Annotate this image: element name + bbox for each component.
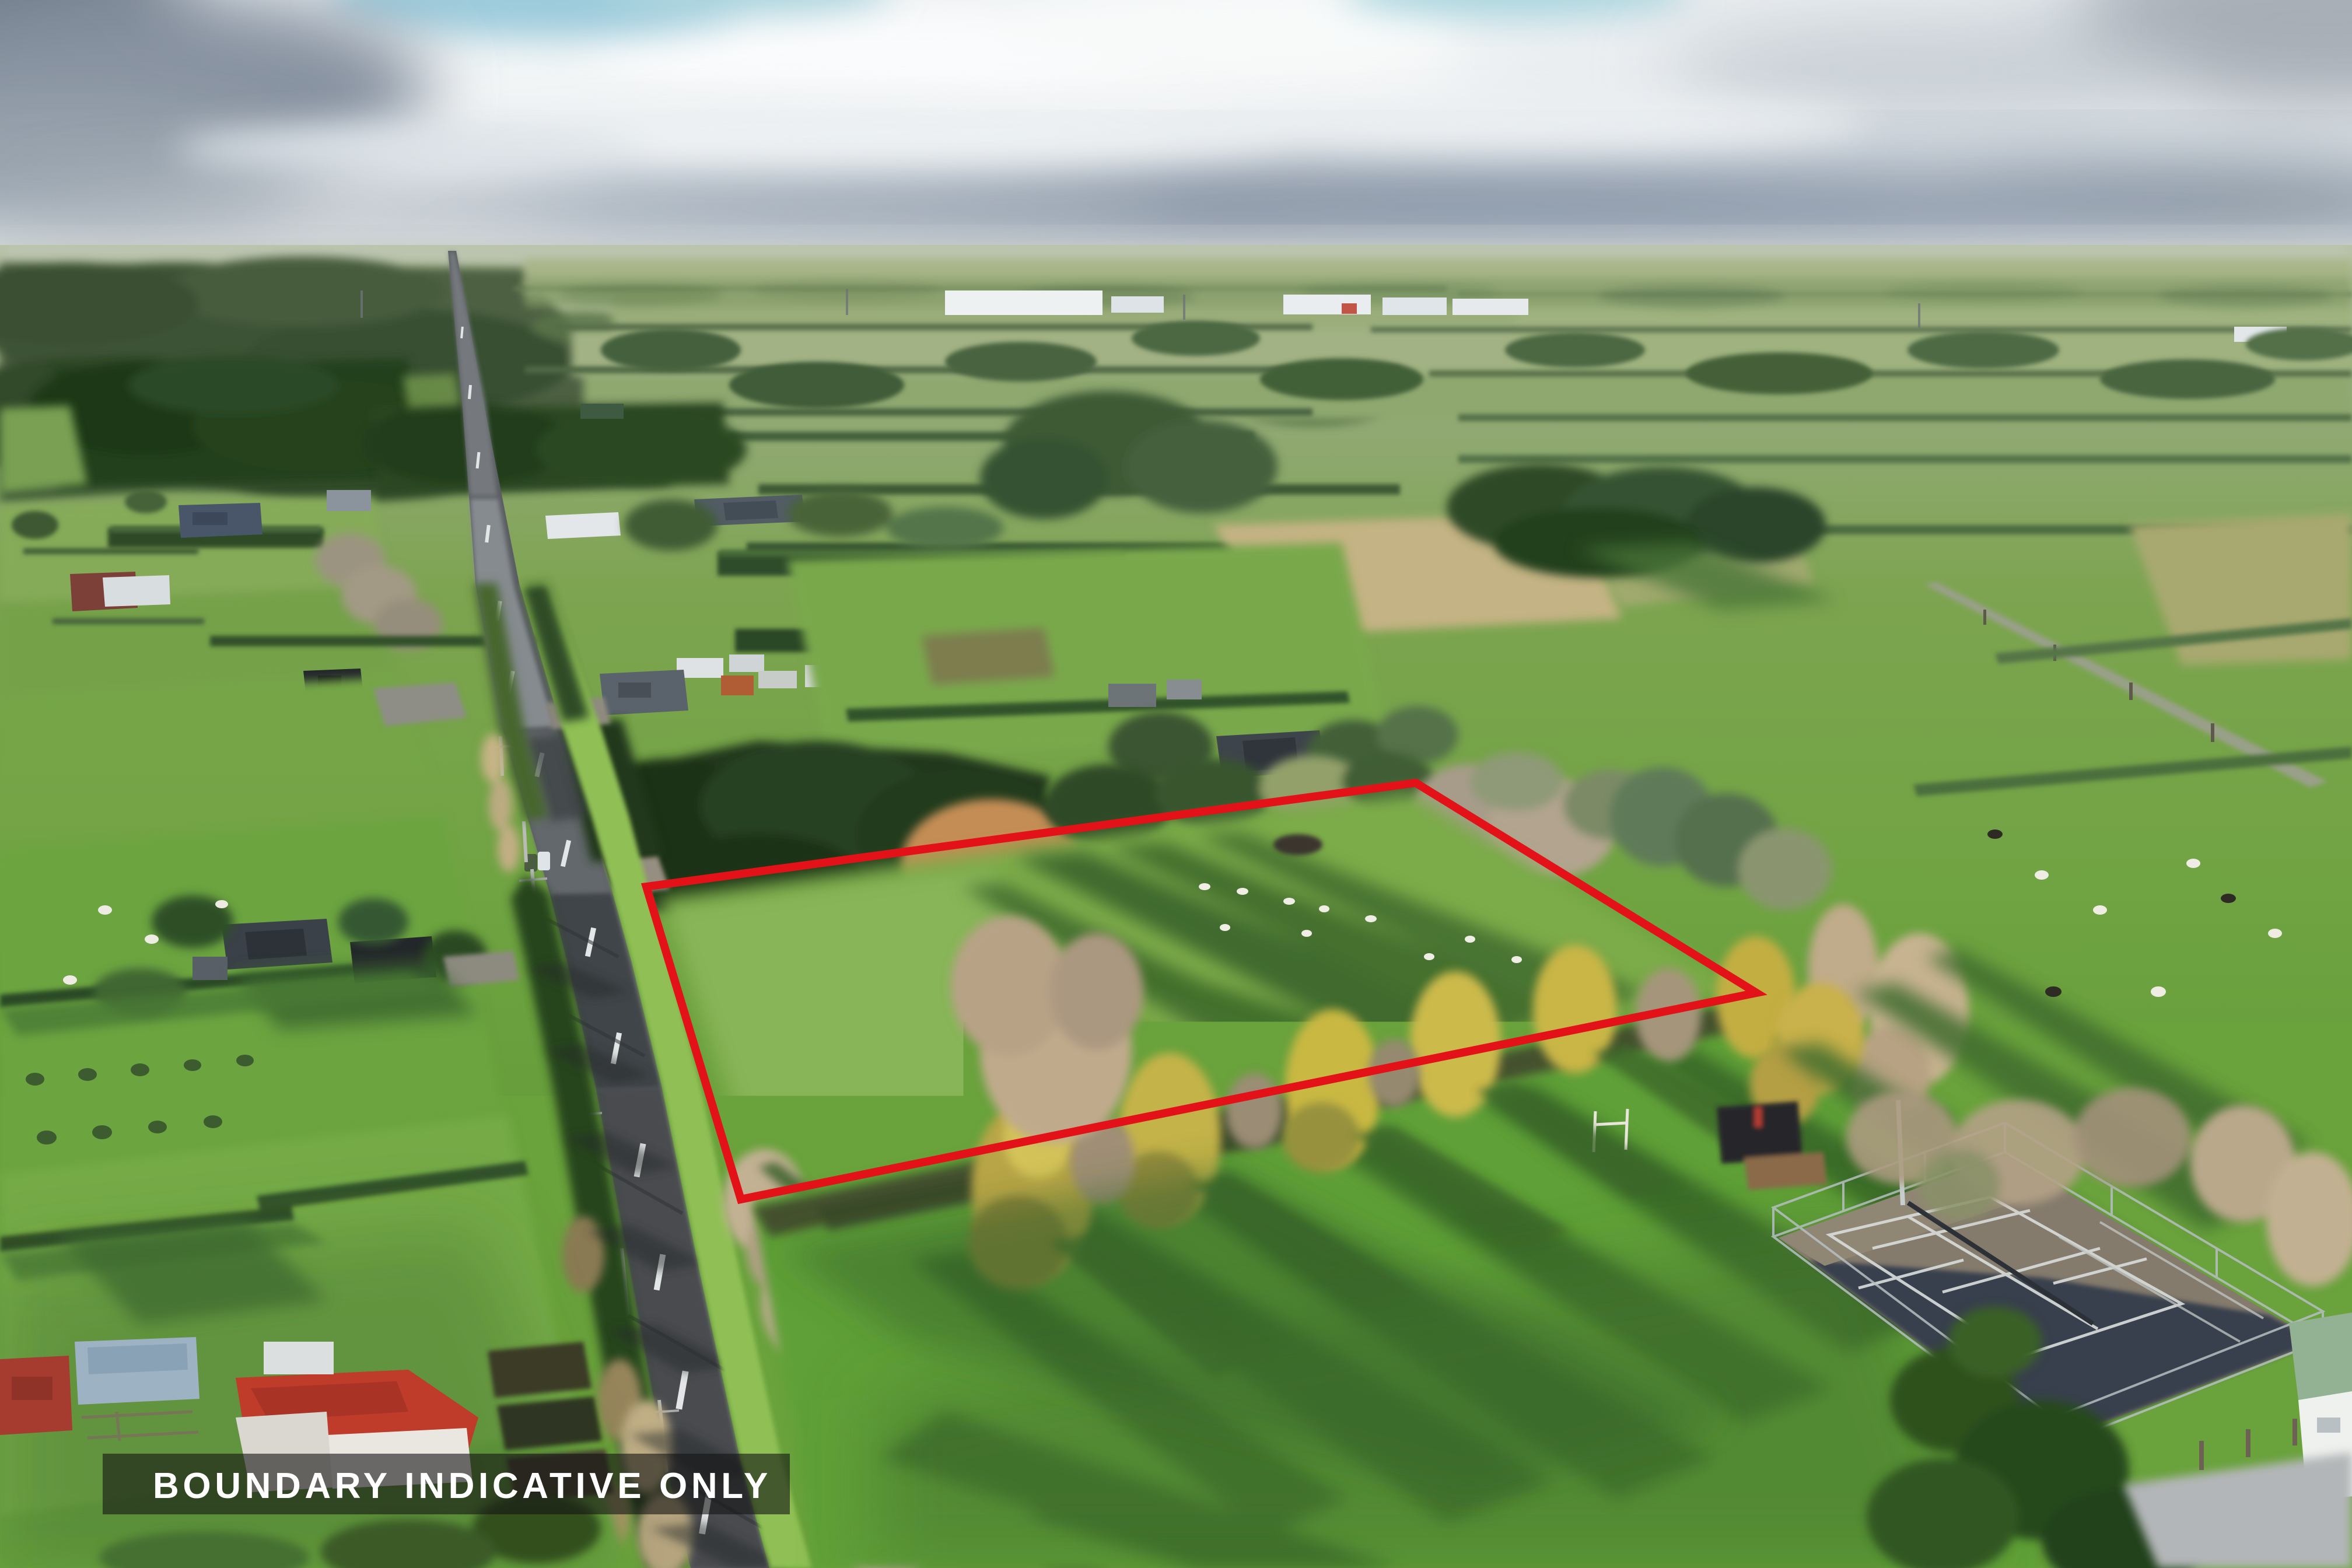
svg-text:BOUNDARY INDICATIVE ONLY: BOUNDARY INDICATIVE ONLY (153, 1466, 772, 1506)
